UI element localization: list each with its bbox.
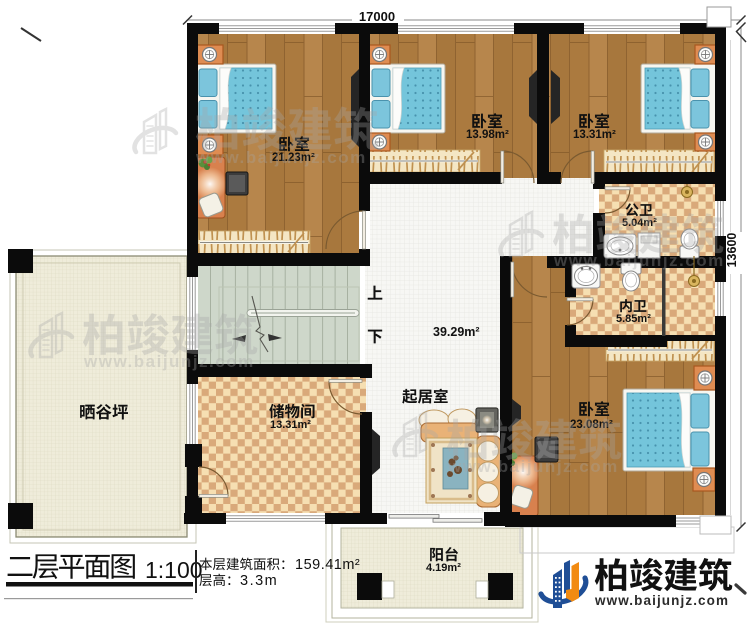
svg-text:www.baijunjz.com: www.baijunjz.com (83, 352, 255, 371)
svg-text:www.baijunjz.com: www.baijunjz.com (447, 457, 619, 476)
svg-text:4.19m²: 4.19m² (426, 562, 461, 574)
svg-text:39.29m²: 39.29m² (433, 325, 480, 339)
svg-text:17000: 17000 (359, 9, 395, 24)
svg-text:159.41m²: 159.41m² (295, 557, 360, 573)
svg-text:www.baijunjz.com: www.baijunjz.com (195, 148, 367, 167)
svg-text:13.98m²: 13.98m² (466, 129, 509, 141)
svg-text:www.baijunjz.com: www.baijunjz.com (594, 593, 729, 608)
svg-text:3.3m: 3.3m (240, 573, 278, 589)
svg-text:13.31m²: 13.31m² (573, 129, 616, 141)
svg-text:5.85m²: 5.85m² (616, 313, 651, 325)
svg-text:1:100: 1:100 (145, 557, 203, 583)
svg-text:13600: 13600 (725, 233, 739, 268)
svg-text:13.31m²: 13.31m² (270, 419, 311, 431)
svg-text:www.baijunjz.com: www.baijunjz.com (553, 251, 725, 270)
